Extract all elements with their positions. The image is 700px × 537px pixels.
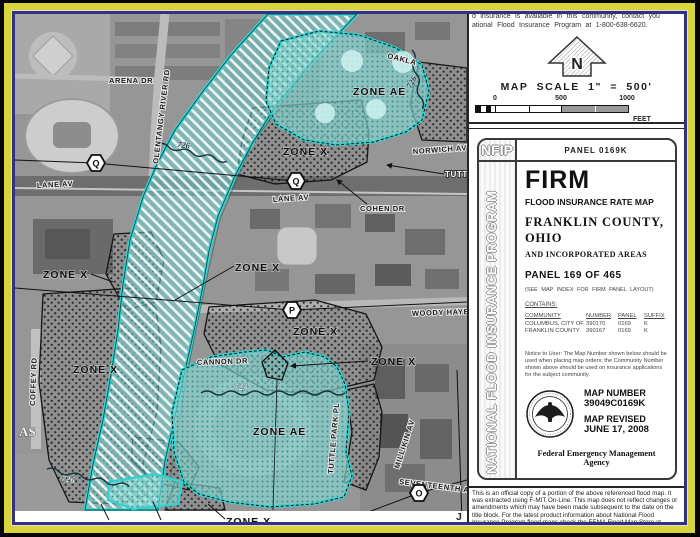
marker-p: P [283, 302, 301, 318]
label-woody-hayes: WOODY HAYE [412, 307, 467, 318]
firm-title-block: NFIP NATIONAL FLOOD INSURANCE PROGRAM PA… [477, 138, 677, 480]
divider-line-1 [469, 122, 684, 124]
scale-bar-pre [475, 105, 497, 113]
nfip-logo: NFIP [479, 140, 515, 162]
see-map-index-note: (SEE MAP INDEX FOR FIRM PANEL LAYOUT) [525, 287, 668, 293]
scale-tick-500: 500 [555, 95, 567, 102]
svg-text:O: O [415, 489, 422, 499]
label-bfe-726-top: 726 [177, 139, 192, 151]
flood-map-svg: OAKLA ARENA DR OLENTANGY RIVER RD NORWIC… [15, 14, 467, 522]
scale-bar: 0 500 1000 FEET [475, 95, 680, 119]
label-cohen-dr: COHEN DR [360, 204, 405, 213]
label-bfe-725: 725 [234, 382, 248, 392]
nfip-vertical-title: NATIONAL FLOOD INSURANCE PROGRAM [484, 164, 499, 474]
label-cannon-dr: CANNON DR [197, 356, 249, 367]
label-as-cut: AS [19, 424, 36, 439]
label-tuttle-cut: TUTTL [445, 170, 467, 179]
label-zone-x-mid: ZONE X [235, 262, 280, 274]
insurance-note-line1: d insurance is available in this communi… [472, 14, 681, 21]
map-number-value: 39049C0169K [584, 398, 649, 409]
county-name: FRANKLIN COUNTY, [525, 215, 668, 230]
table-row: COLUMBUS, CITY OF 390170 0169 K [525, 321, 668, 329]
label-zone-x-sw: ZONE X [73, 364, 118, 376]
contains-label: CONTAINS: [525, 302, 668, 308]
insurance-note-line2: ational Flood Insurance Program at 1-800… [472, 21, 681, 30]
panel-of-count: PANEL 169 OF 465 [525, 270, 668, 281]
label-lane-av-west: LANE AV [37, 179, 74, 190]
label-coffey-rd: COFFEY RD [28, 357, 39, 406]
state-name: OHIO [525, 231, 668, 246]
table-row: FRANKLIN COUNTY 390167 0169 K [525, 328, 668, 336]
col-panel: PANEL [618, 313, 642, 321]
label-zone-ae-top: ZONE AE [353, 86, 406, 98]
map-number-label: MAP NUMBER [584, 388, 649, 398]
scale-bar-seg1 [495, 105, 563, 113]
title-panel: d insurance is available in this communi… [469, 14, 684, 522]
fema-seal [525, 389, 575, 439]
firmette-page: OAKLA ARENA DR OLENTANGY RIVER RD NORWIC… [0, 0, 700, 537]
label-zone-ae-bottom: ZONE AE [253, 426, 306, 438]
label-zone-x-stipple: ZONE X [293, 326, 338, 338]
agency-name: Federal Emergency Management Agency [525, 449, 668, 467]
label-j-cut: J [456, 511, 463, 522]
svg-text:P: P [289, 306, 295, 316]
north-arrow: N [546, 36, 608, 83]
firm-heading: FIRM [525, 168, 668, 193]
firm-title-content: PANEL 0169K FIRM FLOOD INSURANCE RATE MA… [517, 140, 675, 478]
label-zone-x-left: ZONE X [43, 269, 88, 281]
label-zone-x-island: ZONE X [371, 356, 416, 368]
col-number: NUMBER [586, 313, 616, 321]
community-table-header: COMMUNITY NUMBER PANEL SUFFIX [525, 313, 668, 321]
nfip-side-strip: NFIP NATIONAL FLOOD INSURANCE PROGRAM [479, 140, 517, 478]
marker-q2: Q [287, 173, 305, 189]
insurance-note: d insurance is available in this communi… [472, 14, 681, 34]
map-number-block: MAP NUMBER 39049C0169K MAP REVISED JUNE … [584, 388, 649, 440]
scale-bar-seg2 [561, 105, 629, 113]
col-suffix: SUFFIX [644, 313, 668, 321]
incorporated-areas: AND INCORPORATED AREAS [525, 250, 668, 259]
flood-map: OAKLA ARENA DR OLENTANGY RIVER RD NORWIC… [15, 14, 469, 522]
seal-and-map-number: MAP NUMBER 39049C0169K MAP REVISED JUNE … [525, 388, 668, 440]
firm-subtitle: FLOOD INSURANCE RATE MAP [525, 197, 668, 207]
official-copy-disclaimer: This is an official copy of a portion of… [469, 486, 684, 522]
col-community: COMMUNITY [525, 313, 584, 321]
map-scale-title: MAP SCALE 1" = 500' [469, 81, 684, 93]
label-zone-x-top: ZONE X [283, 146, 328, 158]
map-revised-date: JUNE 17, 2008 [584, 424, 649, 435]
notice-to-user: Notice to User: The Map Number shown bel… [525, 351, 668, 379]
divider-line-2 [469, 128, 684, 129]
svg-text:Q: Q [292, 177, 299, 187]
scale-tick-0: 0 [493, 95, 497, 102]
label-zone-x-bottom-cut: ZONE X [226, 516, 271, 522]
panel-number-header: PANEL 0169K [517, 140, 675, 162]
yellow-frame: OAKLA ARENA DR OLENTANGY RIVER RD NORWIC… [4, 3, 695, 533]
marker-q1: Q [87, 155, 105, 171]
inner-border: OAKLA ARENA DR OLENTANGY RIVER RD NORWIC… [12, 11, 687, 525]
scale-tick-1000: 1000 [619, 95, 635, 102]
label-arena-dr: ARENA DR [109, 76, 153, 85]
marker-o: O [410, 485, 428, 501]
community-table: COMMUNITY NUMBER PANEL SUFFIX COLUMBUS, … [525, 313, 668, 336]
north-letter: N [571, 56, 583, 73]
svg-text:Q: Q [92, 159, 99, 169]
map-revised-label: MAP REVISED [584, 414, 649, 424]
